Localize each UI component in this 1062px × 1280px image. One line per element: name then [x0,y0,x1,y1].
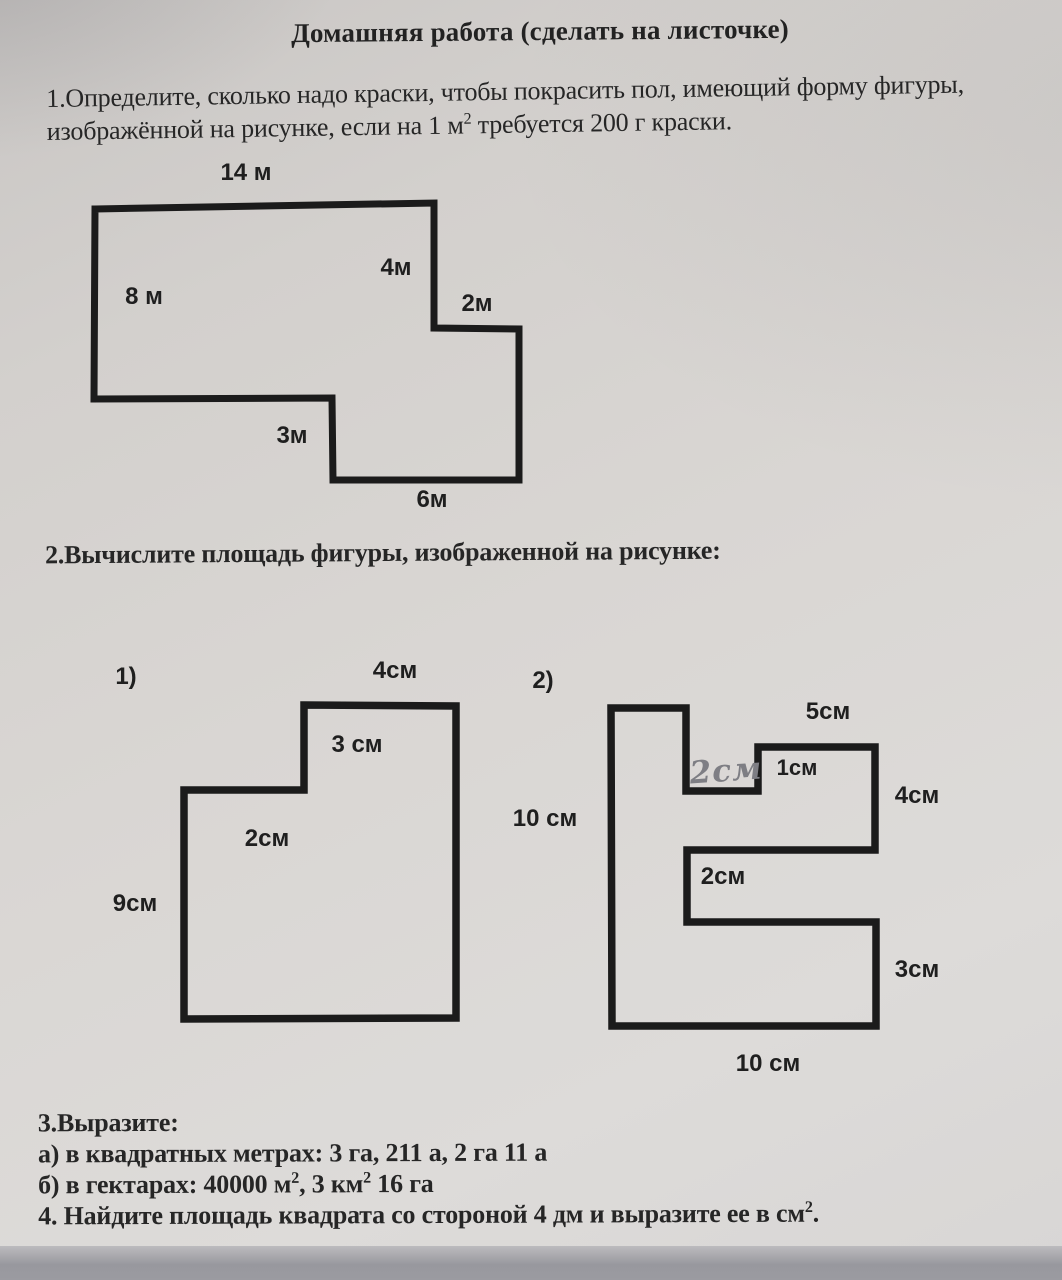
task-4-text: 4. Найдите площадь квадрата со стороной … [38,1199,805,1231]
photo-bottom-edge [0,1246,1062,1280]
fig2-2-index: 2) [532,667,553,695]
task-3-line-b-text-3: 16 га [371,1169,434,1198]
superscript-2: 2 [363,1170,371,1187]
fig2-2-dim-bottom: 10 см [736,1050,800,1078]
task-4-text-end: . [813,1199,819,1228]
figure-drawings [0,0,1062,1280]
worksheet-photo: Домашняя работа (сделать на листочке) 1.… [0,0,1062,1280]
fig1-dim-notch: 3м [276,422,307,450]
superscript-2: 2 [805,1199,813,1216]
task-2: 2.Вычислите площадь фигуры, изображенной… [45,536,721,571]
task-3-line-b: б) в гектарах: 40000 м2, 3 км2 16 га [38,1167,819,1201]
fig2-1-dim-left: 9см [113,890,157,918]
task-4-line: 4. Найдите площадь квадрата со стороной … [38,1198,819,1232]
task-3-heading: 3.Выразите: [38,1105,819,1139]
task-3-line-b-text-2: , 3 км [299,1169,363,1198]
fig1-dim-inner-vertical: 4м [380,254,411,282]
fig1-dim-step: 2м [461,290,492,318]
figure-2-1-outline [184,705,456,1019]
fig2-2-dim-step: 1см [777,755,818,781]
fig2-1-index: 1) [115,663,136,691]
fig2-2-dim-top: 5см [806,698,850,726]
fig2-1-dim-inner-horizontal: 2см [245,825,289,853]
superscript-2: 2 [291,1170,299,1187]
fig2-2-dim-middle: 2см [701,863,745,891]
fig2-2-dim-left: 10 см [513,805,577,833]
fig2-1-dim-top: 4см [373,657,417,685]
fig2-2-dim-right-upper: 4см [895,782,939,810]
task-3-line-a: а) в квадратных метрах: 3 га, 211 а, 2 г… [38,1136,819,1170]
task-3-and-4: 3.Выразите: а) в квадратных метрах: 3 га… [38,1105,819,1232]
fig2-2-dim-handwritten: 2см [688,751,763,792]
fig1-dim-bottom: 6м [416,486,447,514]
fig2-2-dim-right-lower: 3см [895,956,939,984]
fig1-dim-top: 14 м [220,159,271,187]
fig2-1-dim-inner-vertical: 3 см [331,731,382,759]
fig1-dim-left: 8 м [125,283,163,311]
task-3-line-b-text: б) в гектарах: 40000 м [38,1169,291,1199]
